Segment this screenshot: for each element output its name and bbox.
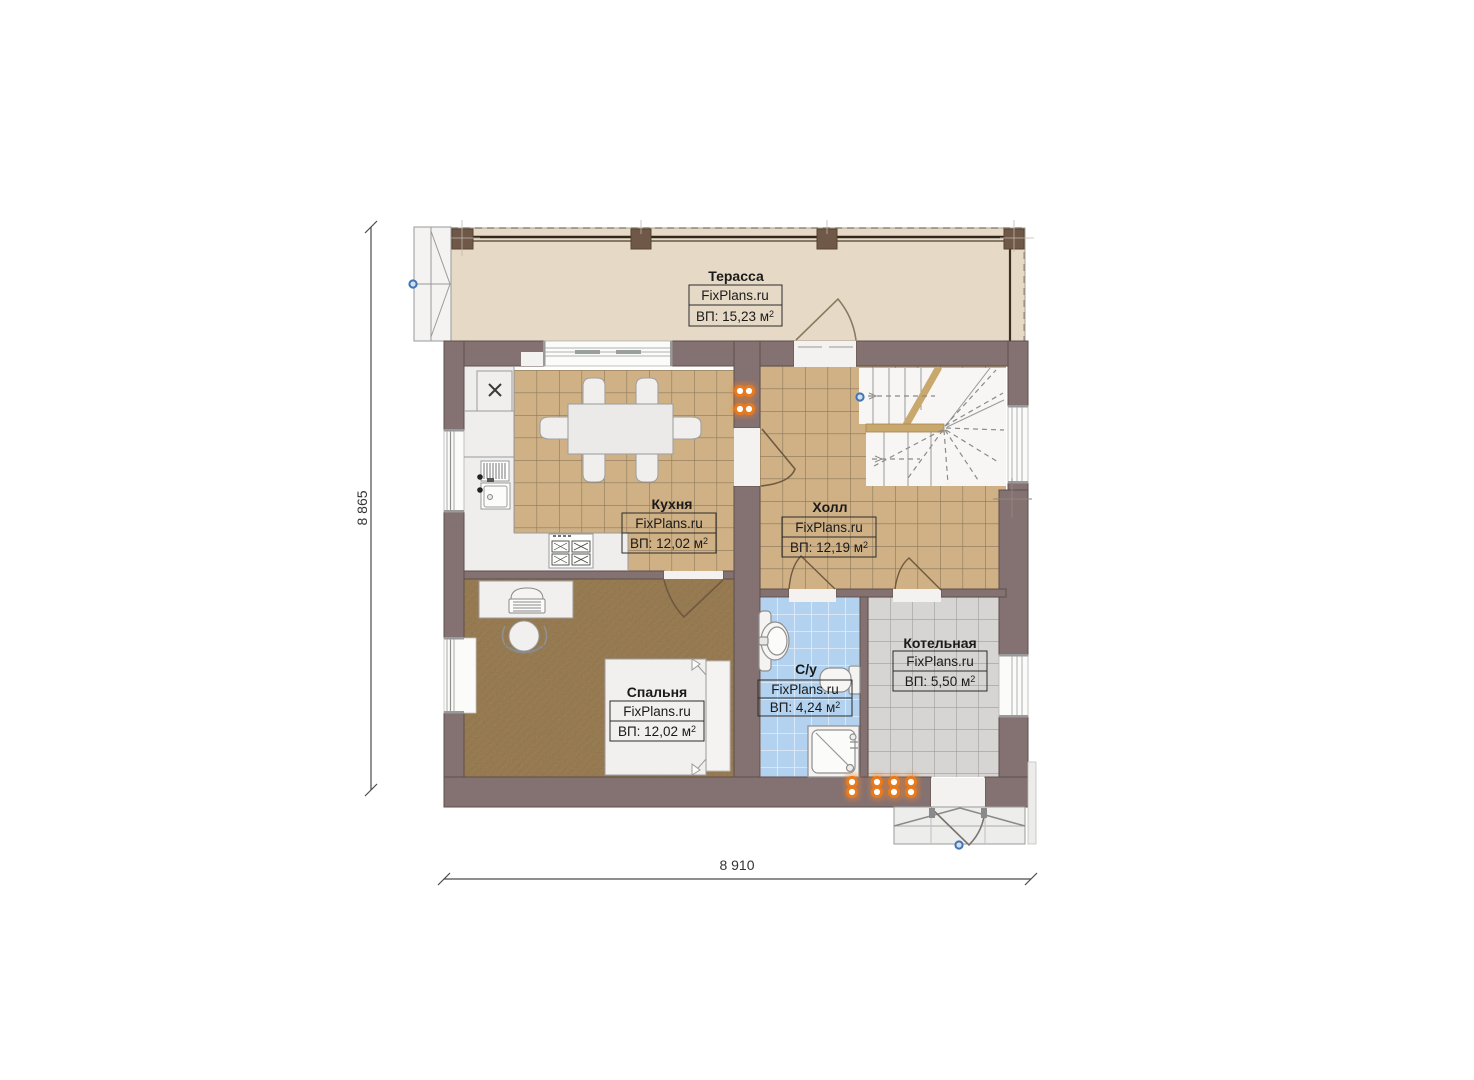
svg-text:FixPlans.ru: FixPlans.ru bbox=[623, 704, 691, 719]
svg-text:8 910: 8 910 bbox=[719, 857, 754, 873]
svg-text:Терасса: Терасса bbox=[708, 268, 764, 284]
svg-text:С/у: С/у bbox=[795, 661, 817, 677]
svg-text:FixPlans.ru: FixPlans.ru bbox=[771, 682, 839, 697]
svg-text:ВП: 12,02 м2: ВП: 12,02 м2 bbox=[630, 536, 708, 551]
svg-text:ВП: 5,50 м2: ВП: 5,50 м2 bbox=[905, 674, 976, 689]
svg-text:FixPlans.ru: FixPlans.ru bbox=[701, 288, 769, 303]
svg-text:ВП: 12,19 м2: ВП: 12,19 м2 bbox=[790, 540, 868, 555]
svg-text:ВП: 15,23 м2: ВП: 15,23 м2 bbox=[696, 309, 774, 324]
svg-text:ВП: 4,24 м2: ВП: 4,24 м2 bbox=[770, 700, 841, 715]
svg-text:8 865: 8 865 bbox=[354, 490, 370, 525]
svg-text:Холл: Холл bbox=[812, 499, 847, 515]
svg-text:FixPlans.ru: FixPlans.ru bbox=[906, 654, 974, 669]
svg-text:Кухня: Кухня bbox=[652, 496, 693, 512]
svg-text:Спальня: Спальня bbox=[627, 684, 687, 700]
svg-text:Котельная: Котельная bbox=[903, 635, 976, 651]
svg-text:FixPlans.ru: FixPlans.ru bbox=[635, 516, 703, 531]
svg-text:FixPlans.ru: FixPlans.ru bbox=[795, 520, 863, 535]
svg-text:ВП: 12,02 м2: ВП: 12,02 м2 bbox=[618, 724, 696, 739]
